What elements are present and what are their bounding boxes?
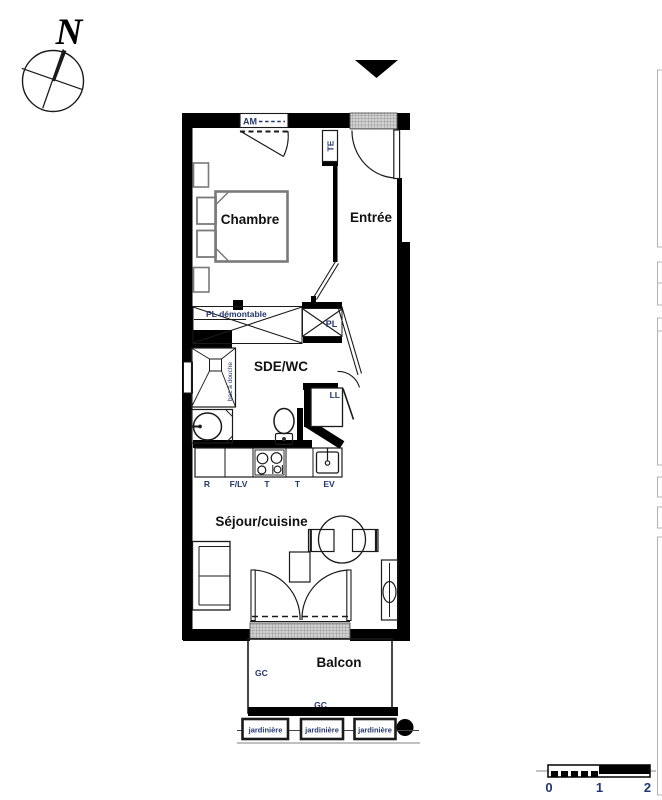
side-table [290,552,311,582]
cooktop [255,450,284,475]
north-label: N [55,12,84,53]
balcony-french-doors [250,570,351,639]
balcony-threshold-grille [250,623,350,639]
sofa [193,542,231,611]
window-label: AM [243,117,257,127]
shower-room-door-leaf [343,389,354,420]
bedroom-window: AM [240,114,288,157]
balcony-label: Balcon [316,655,361,670]
sink-label: EV [323,479,335,489]
balcony: Balcon GC GC jardinière jardinière jardi… [237,639,420,743]
scale-tick-0: 0 [545,780,552,795]
round-table [319,516,366,563]
oven-dishwasher-label: F/LV [230,479,248,489]
closet-demountable: PL démontable [193,307,302,344]
planter-label: jardinière [304,726,339,735]
kitchen-counter: R F/LV T T EV [195,448,342,489]
washing-machine: LL [311,388,343,427]
scale-bar: 0 1 2 [536,765,656,795]
pillow [197,231,216,258]
compass-icon: N [22,12,84,112]
planter-label: jardinière [357,726,392,735]
radiator [382,560,399,620]
kitchen-sink [317,448,339,473]
fridge-label: R [204,479,210,489]
washbasin [192,410,233,444]
shower-room-label: SDE/WC [254,359,308,374]
column [397,719,414,736]
closet-pl-label: PL [326,319,338,329]
pillow [197,198,216,225]
entrance-threshold-grille [350,113,397,129]
worktop-label: T [264,479,270,489]
planter-box: jardinière [355,719,396,739]
nightstand [194,163,209,187]
entrance-marker-icon [355,60,398,78]
living-room-label: Séjour/cuisine [215,514,308,529]
washing-machine-label: LL [330,390,340,400]
floor-plan-svg: N AM [0,0,662,800]
closet-pl: PL [303,309,343,337]
electrical-panel-label: TE [326,140,336,151]
living-room: Séjour/cuisine [193,514,399,639]
shower-room-door-swing [338,371,360,387]
shower-room: SDE/WC bac à douche L [192,348,360,445]
nightstand [194,268,210,293]
electrical-panel: TE [323,131,338,162]
entrance-door [350,113,400,179]
toilet [274,409,294,445]
dining-set [309,516,379,563]
scale-tick-1: 1 [596,780,603,795]
balcony-edge [248,707,398,716]
closet-demountable-label: PL démontable [206,309,267,319]
planter-box: jardinière [243,719,289,739]
planter-box: jardinière [301,719,343,739]
entry-label: Entrée [350,210,393,225]
entry-hall: Entrée [314,210,393,375]
railing-label: GC [255,668,268,678]
planter-label: jardinière [248,726,283,735]
scale-tick-2: 2 [644,780,651,795]
shower-tray-label: bac à douche [227,362,234,401]
shower-tray: bac à douche [192,348,236,407]
bedroom: Chambre [194,163,288,292]
floor-plan-page: N AM [0,0,662,800]
adjacent-plan-edges [658,70,662,795]
worktop-label: T [295,479,301,489]
bedroom-label: Chambre [221,212,280,227]
